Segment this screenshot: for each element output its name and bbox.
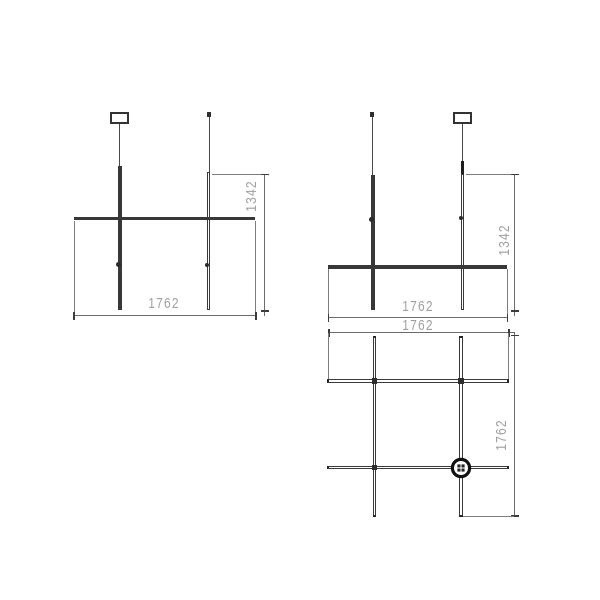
extension-line bbox=[255, 221, 256, 319]
wire-connector bbox=[461, 161, 464, 174]
dimension-tick bbox=[328, 314, 330, 322]
extension-line bbox=[466, 174, 516, 175]
dimension-tick bbox=[255, 312, 257, 320]
extension-line bbox=[463, 516, 514, 517]
extension-line bbox=[328, 269, 329, 320]
dimension-tick bbox=[261, 310, 269, 312]
dimension-tick bbox=[507, 314, 509, 322]
width-dimension-label: 1762 bbox=[394, 319, 442, 333]
rod-joint-knob bbox=[205, 263, 209, 267]
width-dimension-label: 1762 bbox=[394, 300, 442, 314]
rod-connector bbox=[458, 378, 464, 384]
vertical-light-rod bbox=[118, 166, 122, 310]
extension-line bbox=[74, 221, 75, 319]
suspension-wire bbox=[462, 124, 463, 161]
rod-joint-knob bbox=[116, 262, 121, 267]
rod-joint-knob bbox=[459, 216, 463, 220]
technical-drawing-sheet: 1342 1762 1342 1762 bbox=[0, 0, 600, 600]
dimension-tick bbox=[261, 174, 269, 176]
suspension-wire bbox=[209, 117, 210, 172]
horizontal-light-bar bbox=[328, 265, 507, 269]
horizontal-light-tube bbox=[327, 379, 509, 383]
horizontal-light-bar bbox=[74, 217, 255, 221]
vertical-light-rod bbox=[371, 175, 375, 310]
vertical-light-tube bbox=[461, 174, 464, 310]
suspension-wire bbox=[372, 117, 373, 175]
extension-line bbox=[507, 269, 508, 320]
vertical-light-tube bbox=[459, 336, 463, 517]
extension-line bbox=[328, 333, 329, 380]
dimension-line-height bbox=[514, 174, 515, 316]
rod-connector bbox=[372, 378, 378, 384]
width-dimension-label: 1762 bbox=[140, 297, 188, 311]
ceiling-canopy bbox=[453, 112, 472, 124]
dimension-tick bbox=[511, 174, 519, 176]
rod-connector bbox=[372, 465, 378, 471]
extension-line bbox=[508, 333, 509, 380]
power-canopy-icon bbox=[450, 457, 472, 479]
rod-joint-knob bbox=[369, 217, 374, 222]
vertical-light-tube bbox=[207, 172, 210, 310]
horizontal-light-tube bbox=[327, 466, 509, 470]
ceiling-canopy bbox=[110, 112, 129, 124]
height-dimension-label: 1342 bbox=[245, 172, 259, 220]
dimension-line-width bbox=[74, 315, 257, 316]
dimension-tick bbox=[511, 335, 519, 337]
dimension-tick bbox=[73, 312, 75, 320]
dimension-tick bbox=[511, 310, 519, 312]
height-dimension-label: 1342 bbox=[498, 216, 512, 264]
dimension-line-depth bbox=[514, 332, 515, 517]
depth-dimension-label: 1762 bbox=[495, 411, 509, 459]
suspension-wire bbox=[119, 124, 120, 167]
dimension-line-height bbox=[264, 174, 265, 316]
vertical-light-tube bbox=[373, 336, 377, 517]
dimension-line-width bbox=[329, 332, 515, 333]
